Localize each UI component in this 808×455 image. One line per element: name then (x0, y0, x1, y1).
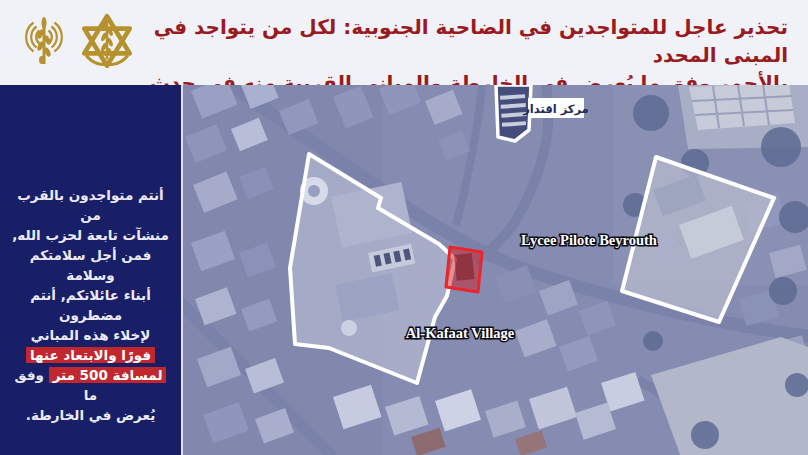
warning-line: منشآت تابعة لحزب الله, (6, 225, 175, 245)
header: تحذير عاجل للمتواجدين في الضاحية الجنوبي… (0, 0, 808, 85)
broadcast-antenna-icon (22, 12, 66, 74)
sidebar-warning-panel: أنتم متواجدون بالقرب من منشآت تابعة لحزب… (0, 85, 183, 455)
evacuation-warning-text: أنتم متواجدون بالقرب من منشآت تابعة لحزب… (0, 185, 181, 425)
target-building-red (446, 247, 482, 292)
warning-line: أبناء عائلاتكم, أنتم مضطرون (6, 285, 175, 325)
warning-flyer: تحذير عاجل للمتواجدين في الضاحية الجنوبي… (0, 0, 808, 455)
warning-line-mixed: لمسافة 500 متر وفق ما (6, 365, 175, 405)
warning-line: لإخلاء هذه المباني (6, 325, 175, 345)
warning-line: يُعرض في الخارطة. (6, 405, 175, 425)
warning-line: أنتم متواجدون بالقرب من (6, 185, 175, 225)
header-line1: تحذير عاجل للمتواجدين في الضاحية الجنوبي… (138, 13, 788, 69)
lycee-label-text: Lycee Pilote Beyrouth (521, 232, 657, 248)
kafaat-label-text: Al-Kafaat Village (406, 325, 515, 341)
idf-emblem-icon (76, 12, 138, 74)
iqtidar-label-text: مركز اقتدار (522, 102, 589, 116)
satellite-map: مركز اقتدار Lycee Pilote Beyrouth Al-Kaf… (183, 85, 808, 455)
warning-line-highlighted: فورًا والابتعاد عنها (6, 345, 175, 365)
map-label-iqtidar: مركز اقتدار (522, 98, 589, 118)
warning-line: فمن أجل سلامتكم وسلامة (6, 245, 175, 285)
header-emblems (22, 10, 147, 76)
